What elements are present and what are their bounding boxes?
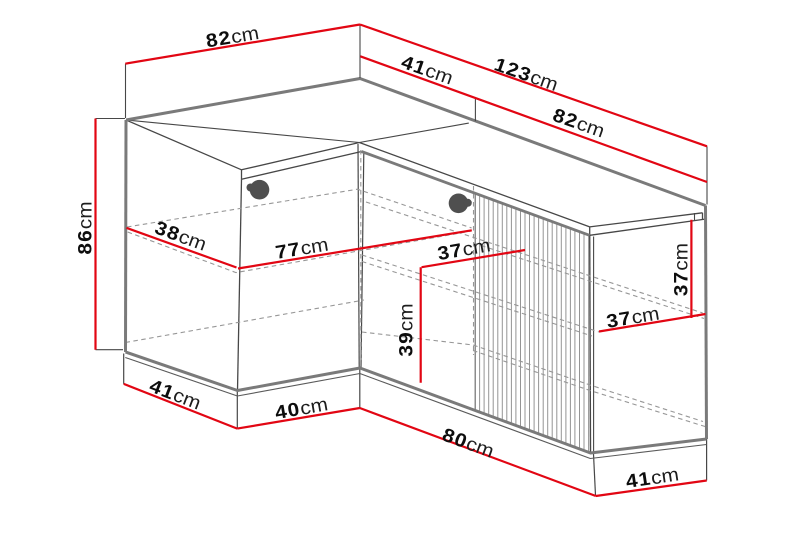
svg-text:37cm: 37cm xyxy=(672,243,693,296)
svg-text:39cm: 39cm xyxy=(397,303,418,356)
svg-text:86cm: 86cm xyxy=(76,201,97,254)
